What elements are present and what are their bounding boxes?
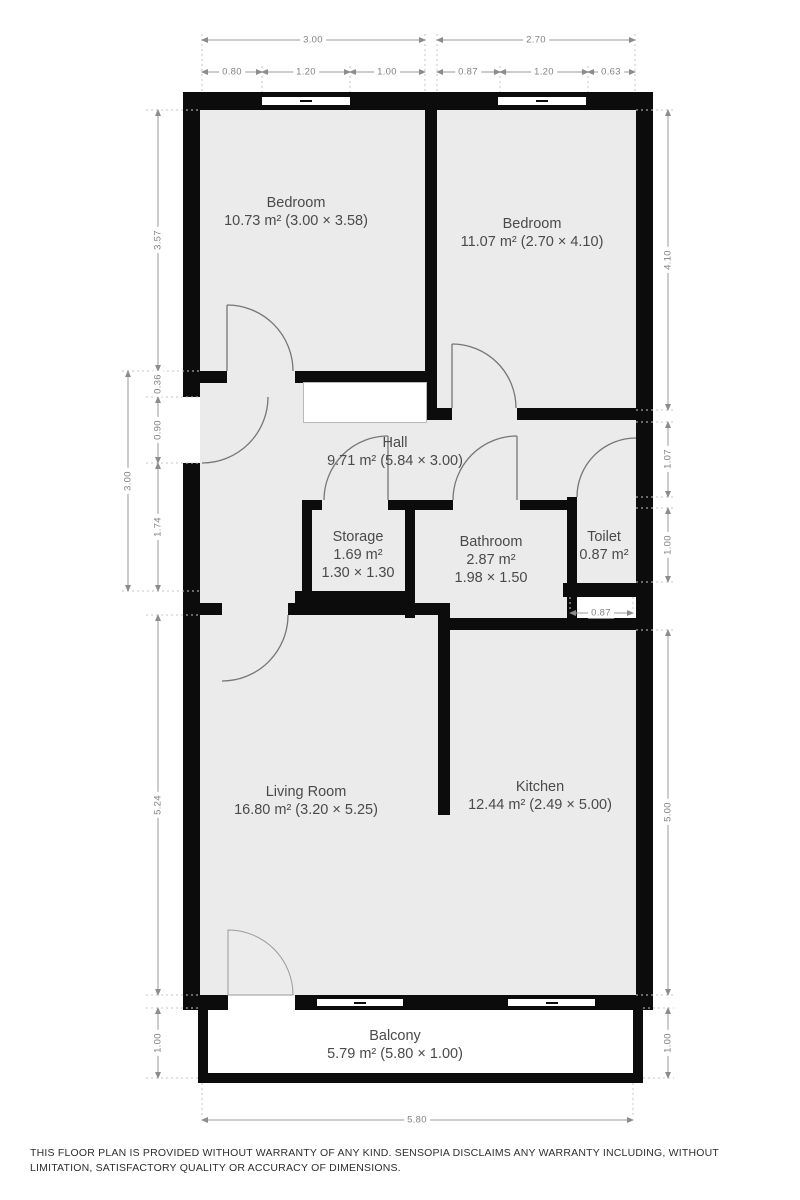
room-area: 0.87 m² (579, 546, 628, 564)
reference-guides (122, 34, 674, 1116)
dim-right-5: 1.00 (663, 1030, 674, 1056)
room-name: Toilet (579, 528, 628, 546)
room-area: 16.80 m² (3.20 × 5.25) (234, 801, 378, 819)
room-area: 12.44 m² (2.49 × 5.00) (468, 796, 612, 814)
dim-top-sub-3: 1.00 (374, 67, 400, 78)
dim-left-outer: 3.00 (123, 468, 134, 494)
room-label-hall: Hall 9.71 m² (5.84 × 3.00) (327, 434, 463, 470)
dim-left-6: 1.00 (153, 1030, 164, 1056)
dim-left-1: 3.57 (153, 227, 164, 253)
room-area: 11.07 m² (2.70 × 4.10) (461, 233, 604, 251)
dimension-lines (128, 40, 668, 1120)
dim-top-sub-1: 0.80 (219, 67, 245, 78)
dim-bottom-total: 5.80 (404, 1115, 430, 1126)
room-label-living-room: Living Room 16.80 m² (3.20 × 5.25) (234, 783, 378, 819)
dim-top-total-1: 3.00 (300, 35, 326, 46)
dim-top-sub-4: 0.87 (455, 67, 481, 78)
dim-right-2: 1.07 (663, 446, 674, 472)
room-area: 9.71 m² (5.84 × 3.00) (327, 452, 463, 470)
room-size: 1.30 × 1.30 (322, 564, 395, 582)
room-name: Kitchen (468, 778, 612, 796)
room-area: 5.79 m² (5.80 × 1.00) (327, 1045, 463, 1063)
door-arc-living (222, 615, 288, 681)
plan-linework (0, 0, 800, 1200)
room-label-toilet: Toilet 0.87 m² (579, 528, 628, 564)
dim-left-3: 0.90 (153, 417, 164, 443)
dim-right-3: 1.00 (663, 532, 674, 558)
room-area: 2.87 m² (455, 551, 528, 569)
room-name: Balcony (327, 1027, 463, 1045)
door-arc-bedroom2 (452, 344, 516, 408)
dim-right-1: 4.10 (663, 247, 674, 273)
floor-plan: 3.00 2.70 0.80 1.20 1.00 0.87 1.20 0.63 … (0, 0, 800, 1200)
room-label-bedroom2: Bedroom 11.07 m² (2.70 × 4.10) (461, 215, 604, 251)
room-area: 1.69 m² (322, 546, 395, 564)
room-name: Storage (322, 528, 395, 546)
room-name: Living Room (234, 783, 378, 801)
door-arc-entry (202, 397, 268, 463)
dim-toilet-opening: 0.87 (588, 608, 614, 619)
room-label-balcony: Balcony 5.79 m² (5.80 × 1.00) (327, 1027, 463, 1063)
dim-top-sub-2: 1.20 (293, 67, 319, 78)
dim-top-total-2: 2.70 (523, 35, 549, 46)
door-arc-bedroom1 (227, 305, 293, 371)
dim-left-5: 5.24 (153, 792, 164, 818)
room-label-bedroom1: Bedroom 10.73 m² (3.00 × 3.58) (224, 194, 368, 230)
room-label-bathroom: Bathroom 2.87 m² 1.98 × 1.50 (455, 533, 528, 587)
dim-left-4: 1.74 (153, 514, 164, 540)
door-swings (202, 305, 636, 995)
dim-top-sub-5: 1.20 (531, 67, 557, 78)
room-name: Hall (327, 434, 463, 452)
balcony-door-panel (228, 930, 293, 995)
dim-left-2: 0.36 (153, 371, 164, 397)
room-size: 1.98 × 1.50 (455, 569, 528, 587)
dim-top-sub-6: 0.63 (598, 67, 624, 78)
disclaimer-text: THIS FLOOR PLAN IS PROVIDED WITHOUT WARR… (30, 1146, 730, 1176)
door-arc-toilet (577, 438, 636, 497)
dim-right-4: 5.00 (663, 799, 674, 825)
room-name: Bedroom (224, 194, 368, 212)
room-name: Bedroom (461, 215, 604, 233)
room-name: Bathroom (455, 533, 528, 551)
room-area: 10.73 m² (3.00 × 3.58) (224, 212, 368, 230)
room-label-storage: Storage 1.69 m² 1.30 × 1.30 (322, 528, 395, 582)
room-label-kitchen: Kitchen 12.44 m² (2.49 × 5.00) (468, 778, 612, 814)
